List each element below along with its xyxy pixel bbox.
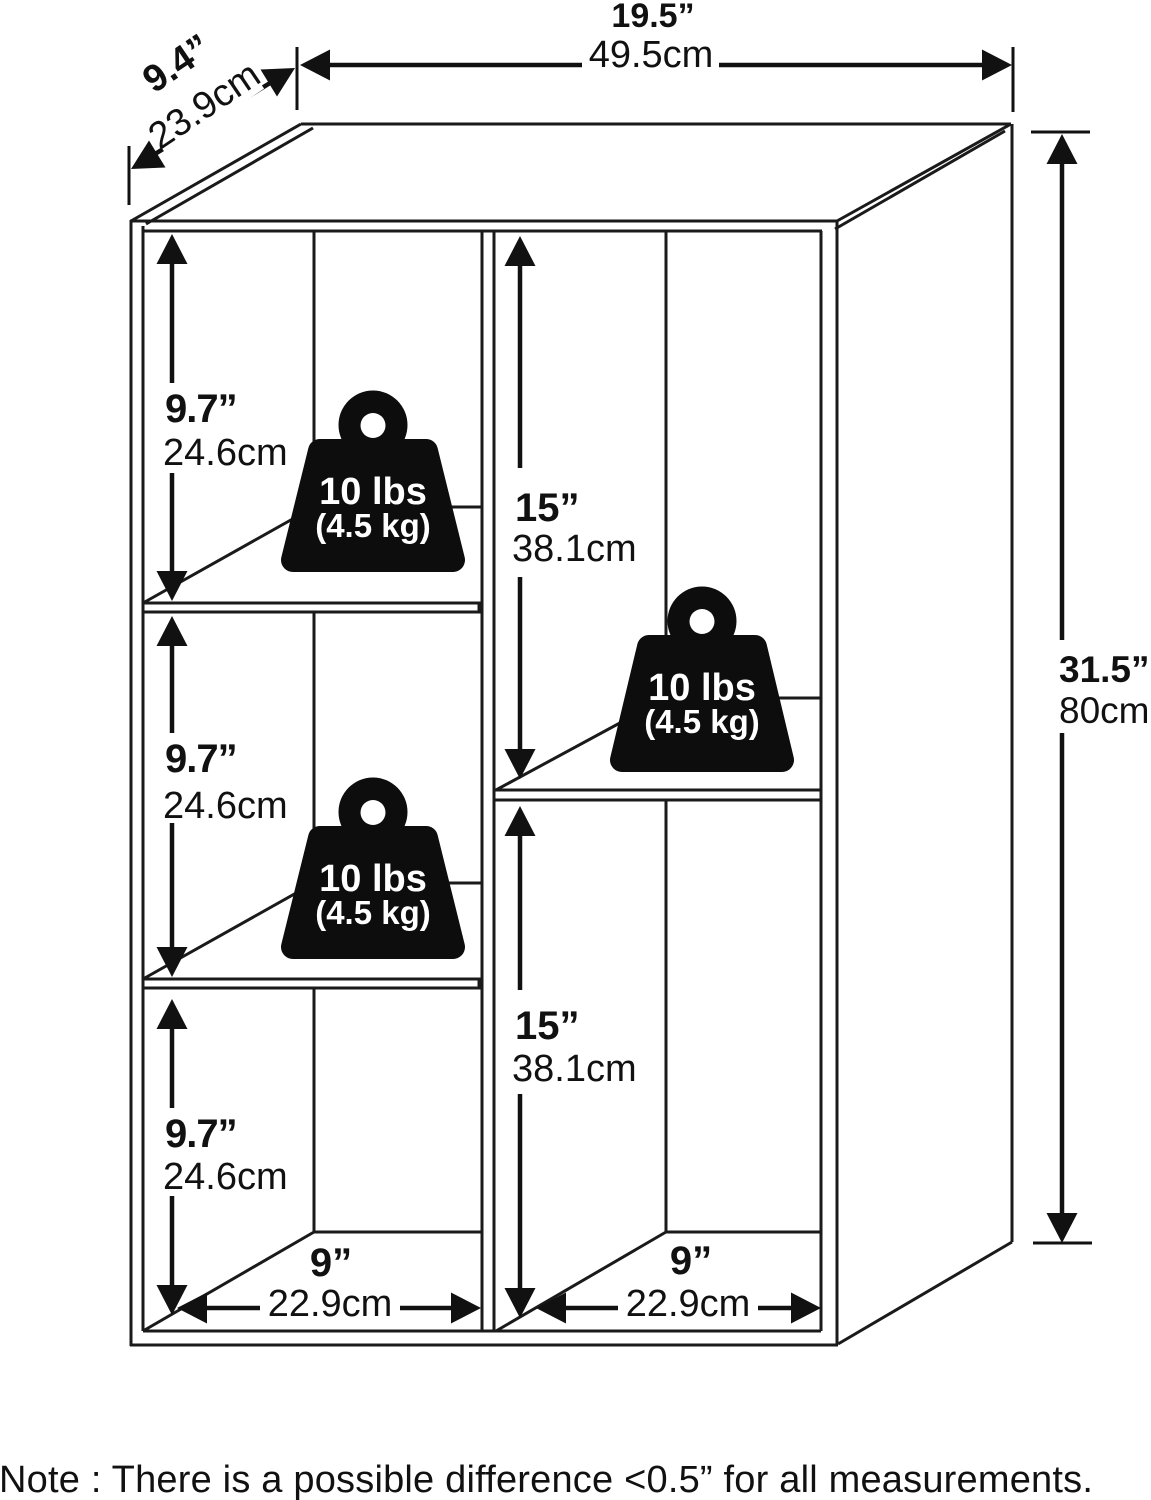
svg-text:38.1cm: 38.1cm: [512, 528, 637, 570]
svg-text:(4.5 kg): (4.5 kg): [644, 703, 760, 740]
svg-text:15”: 15”: [515, 486, 580, 530]
svg-text:Note : There is a possible dif: Note : There is a possible difference <0…: [0, 1459, 1093, 1500]
svg-text:49.5cm: 49.5cm: [589, 34, 714, 76]
svg-text:22.9cm: 22.9cm: [626, 1283, 751, 1325]
svg-text:(4.5 kg): (4.5 kg): [315, 507, 431, 544]
svg-text:15”: 15”: [515, 1004, 580, 1048]
svg-text:24.6cm: 24.6cm: [163, 432, 288, 474]
svg-text:(4.5 kg): (4.5 kg): [315, 894, 431, 931]
svg-text:80cm: 80cm: [1059, 690, 1149, 731]
svg-text:9”: 9”: [670, 1239, 712, 1283]
svg-text:9”: 9”: [310, 1241, 352, 1285]
svg-text:9.7”: 9.7”: [165, 387, 237, 431]
svg-text:22.9cm: 22.9cm: [268, 1283, 393, 1325]
svg-text:24.6cm: 24.6cm: [163, 785, 288, 827]
svg-text:24.6cm: 24.6cm: [163, 1156, 288, 1198]
svg-text:9.7”: 9.7”: [165, 737, 237, 781]
svg-text:19.5”: 19.5”: [611, 0, 694, 35]
svg-text:38.1cm: 38.1cm: [512, 1048, 637, 1090]
svg-text:31.5”: 31.5”: [1059, 649, 1150, 690]
svg-text:9.7”: 9.7”: [165, 1112, 237, 1156]
